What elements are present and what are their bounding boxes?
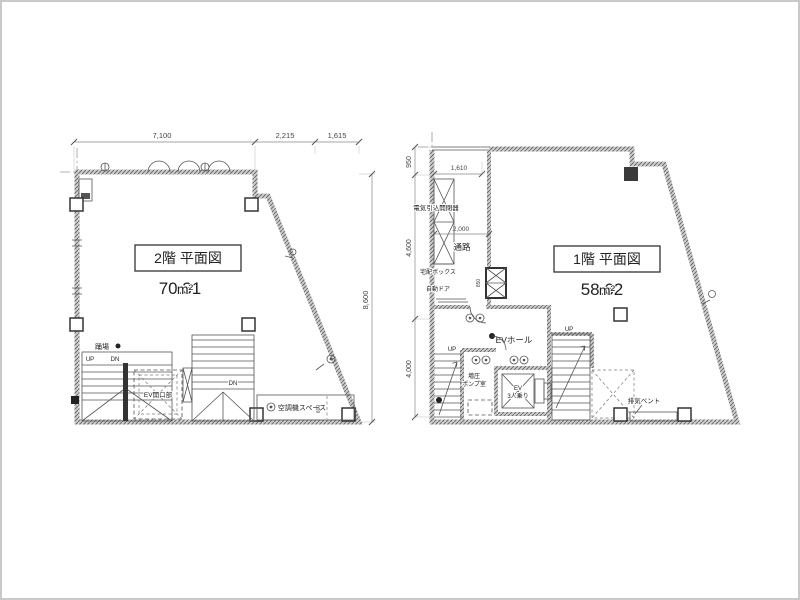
- shaft-block: [71, 396, 79, 404]
- floor2-dim-600: 600: [316, 405, 322, 414]
- column: [678, 408, 691, 421]
- floor1-title: 1階 平面図: [573, 251, 641, 267]
- floor1-dim-4000: 4,000: [406, 360, 413, 378]
- floor1-ev-label: EV: [514, 386, 522, 392]
- floor1-dim-1610: 1,610: [451, 165, 468, 172]
- floor2-dimensions: 7,100 2,215 1,615 8,600: [71, 131, 375, 425]
- column: [614, 408, 627, 421]
- floor2-dn2-label: DN: [229, 381, 238, 387]
- floor2-ac-space: 空調機スペース 600: [257, 395, 354, 420]
- floor1-walls: [418, 132, 737, 422]
- floorplan-canvas: 7,100 2,215 1,615 8,600: [0, 0, 800, 600]
- floor1-autodoor-label: 自動ドア: [426, 285, 450, 293]
- floor2-stair-center: DN: [192, 335, 254, 421]
- floor1-corridor-label: 通路: [453, 242, 471, 252]
- floor2-landing-label: 踊場: [95, 342, 109, 351]
- floor1-up2-label: UP: [565, 327, 573, 333]
- floor1-dim-4600: 4,600: [406, 239, 413, 257]
- column: [245, 198, 258, 211]
- floor2-dim-1615: 1,615: [328, 131, 347, 140]
- floor1-title-block: 1階 平面図 58.62 m²: [554, 246, 660, 299]
- floor1-area-unit: m²: [599, 282, 616, 298]
- column: [624, 167, 638, 181]
- floor1-stair-left: UP: [434, 347, 462, 417]
- floor2-dim-2215: 2,215: [276, 131, 295, 140]
- floor2-stair-left: 踊場 UP DN: [82, 342, 172, 421]
- floor1-electric-label: 電気引込開閉器: [413, 203, 459, 212]
- floor1-vent-label: 排気ベント: [628, 396, 661, 405]
- floor1-dim-2000: 2,000: [453, 226, 470, 233]
- floor1-evhall-label: EVホール: [496, 335, 533, 345]
- floor2-dim-7100: 7,100: [153, 131, 172, 140]
- floor1-delivery-label: 宅配ボックス: [420, 268, 456, 276]
- floor2-ev-opening-label: EV開口部: [144, 390, 173, 399]
- landing-dot: [116, 344, 121, 349]
- floor2-ev-opening: EV開口部: [134, 368, 192, 419]
- auto-door-icon: [436, 299, 468, 302]
- floor1-pump-label-2: ポンプ室: [462, 380, 486, 388]
- floor1-corridor: 1,610 電気引込開閉器 2,000 通路 宅配ボックス 850 自動ドア: [413, 162, 506, 323]
- floorplan-drawing: 7,100 2,215 1,615 8,600: [2, 2, 800, 600]
- floor2-up-label: UP: [86, 357, 94, 363]
- column: [242, 318, 255, 331]
- floor1-ev-shaft: EV 3人乗り: [496, 368, 551, 414]
- floor2-area-unit: m²: [177, 281, 194, 297]
- column: [70, 198, 83, 211]
- floor1-ev-hall: EVホール: [466, 314, 533, 364]
- floor1-ev-capacity-label: 3人乗り: [507, 393, 528, 400]
- stair-rail: [123, 363, 128, 421]
- floor1-up1-label: UP: [448, 347, 456, 353]
- ev-door-unit: [535, 379, 544, 403]
- floor1-pump-room: 増圧 ポンプ室: [462, 372, 492, 415]
- floor2-title-block: 2階 平面図 70.31 m²: [135, 245, 241, 298]
- floor2-title: 2階 平面図: [154, 250, 222, 266]
- column: [70, 318, 83, 331]
- floor1-pump-label-1: 増圧: [468, 372, 480, 380]
- floor2-plan: 7,100 2,215 1,615 8,600: [60, 131, 375, 425]
- floor2-walls: [60, 148, 359, 422]
- diagonal-vent-icon: [709, 291, 716, 298]
- floor1-plan: 950 4,600 4,000 1,610 電気引込開閉器: [406, 132, 737, 422]
- floor1-dim-850: 850: [476, 279, 482, 288]
- floor1-vent: 排気ベント: [614, 396, 691, 421]
- electric-switch-box: [434, 179, 454, 264]
- column: [614, 308, 627, 321]
- floor2-dn-label: DN: [111, 357, 120, 363]
- floor2-dim-8600: 8,600: [361, 291, 370, 310]
- column: [342, 408, 355, 421]
- floor1-dim-950: 950: [406, 156, 413, 168]
